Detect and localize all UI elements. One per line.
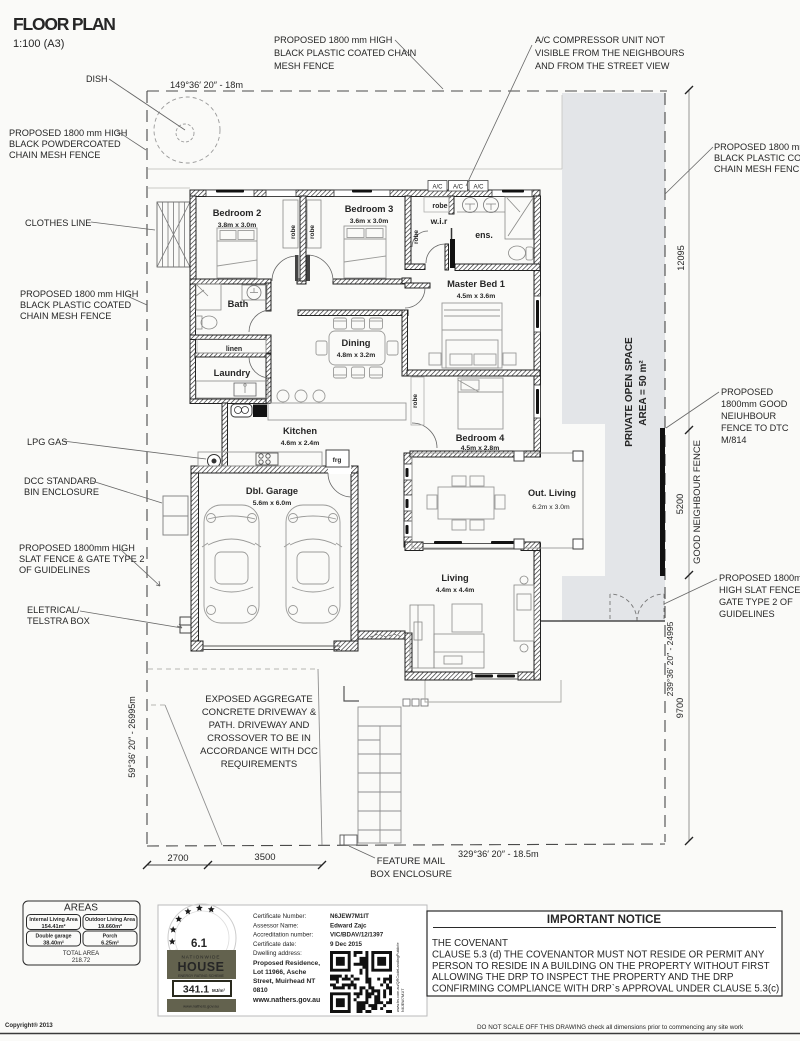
svg-text:HOUSE: HOUSE [178,960,225,974]
svg-text:5.6m x 6.0m: 5.6m x 6.0m [253,500,292,507]
svg-text:TELSTRA BOX: TELSTRA BOX [27,616,90,626]
svg-text:38.40m²: 38.40m² [43,940,64,947]
svg-text:CHAIN MESH FENCE: CHAIN MESH FENCE [9,150,100,160]
svg-text:BLACK POWDERCOATED: BLACK POWDERCOATED [9,139,121,149]
svg-text:Dbl. Garage: Dbl. Garage [246,486,298,496]
svg-text:Certificate date:: Certificate date: [253,941,297,948]
svg-text:N6JEW7M1IT: N6JEW7M1IT [401,988,405,1012]
svg-text:REQUIREMENTS: REQUIREMENTS [221,759,298,770]
svg-text:BOX ENCLOSURE: BOX ENCLOSURE [370,869,452,880]
svg-text:robe: robe [413,230,420,244]
svg-text:www.nathers.gov.au: www.nathers.gov.au [252,997,320,1004]
svg-text:239°36′ 20″ - 24995: 239°36′ 20″ - 24995 [665,621,675,696]
svg-text:19.660m²: 19.660m² [98,923,122,930]
svg-text:PROPOSED 1800 mm HIGH: PROPOSED 1800 mm HIGH [9,128,127,138]
svg-text:3.6m x 3.0m: 3.6m x 3.0m [350,218,389,225]
svg-text:ens.: ens. [475,230,493,240]
svg-text:FLOOR PLAN: FLOOR PLAN [13,14,115,34]
svg-text:OF GUIDELINES: OF GUIDELINES [19,565,90,575]
svg-text:NATIONWIDE: NATIONWIDE [181,955,220,960]
svg-text:CROSSOVER TO BE IN: CROSSOVER TO BE IN [207,733,311,744]
svg-text:9700: 9700 [675,698,685,718]
svg-text:FENCE TO DTC: FENCE TO DTC [721,423,789,433]
svg-text:DISH: DISH [86,74,108,84]
svg-text:BLACK PLASTIC COATED CHAIN: BLACK PLASTIC COATED CHAIN [274,48,416,58]
svg-text:PERSON TO RESIDE IN A BUILDING: PERSON TO RESIDE IN A BUILDING ON THE PR… [432,961,770,972]
svg-text:PATH. DRIVEWAY AND: PATH. DRIVEWAY AND [209,720,310,731]
svg-text:robe: robe [309,225,316,239]
svg-text:59°36′ 20″ - 26995m: 59°36′ 20″ - 26995m [127,696,137,778]
svg-text:NEIUHBOUR: NEIUHBOUR [721,411,776,421]
svg-text:Dining: Dining [342,338,371,348]
svg-text:218.72: 218.72 [72,958,91,964]
svg-text:frg: frg [333,457,342,464]
svg-text:CHAIN MESH FENCE: CHAIN MESH FENCE [714,164,800,174]
svg-text:329°36′ 20″ - 18.5m: 329°36′ 20″ - 18.5m [458,849,539,859]
svg-text:SLAT FENCE & GATE TYPE 2: SLAT FENCE & GATE TYPE 2 [19,554,144,564]
svg-text:MESH FENCE: MESH FENCE [274,61,334,71]
svg-text:BLACK PLASTIC COATED: BLACK PLASTIC COATED [20,300,131,310]
svg-text:www.hs.com.au/QRCodeLandingPub: www.hs.com.au/QRCodeLandingPublicfe [396,943,400,1012]
svg-text:Bedroom 4: Bedroom 4 [456,433,505,443]
svg-text:4.4m x 4.4m: 4.4m x 4.4m [436,587,475,594]
svg-text:w.i.r: w.i.r [430,216,448,226]
svg-text:6.25m²: 6.25m² [101,940,119,947]
svg-text:A/C: A/C [473,185,484,191]
svg-text:CONCRETE DRIVEWAY &: CONCRETE DRIVEWAY & [202,707,317,718]
svg-text:Double garage: Double garage [35,934,71,940]
svg-text:PROPOSED 1800 mm HIGH: PROPOSED 1800 mm HIGH [274,35,392,45]
svg-text:Copyright® 2013: Copyright® 2013 [5,1022,53,1029]
svg-text:3500: 3500 [254,852,275,863]
svg-text:GATE TYPE 2 OF: GATE TYPE 2 OF [719,597,793,607]
svg-text:A/C: A/C [453,185,464,191]
svg-text:5200: 5200 [675,494,685,514]
svg-text:BLACK PLASTIC COATED: BLACK PLASTIC COATED [714,153,800,163]
svg-text:GOOD NEIGHBOUR FENCE: GOOD NEIGHBOUR FENCE [692,440,703,564]
svg-text:12095: 12095 [676,245,686,271]
svg-text:6.1: 6.1 [191,938,208,950]
svg-text:Bedroom 3: Bedroom 3 [345,204,394,214]
svg-text:4.5m x 3.6m: 4.5m x 3.6m [457,293,496,300]
svg-text:6.2m x 3.0m: 6.2m x 3.0m [532,504,570,511]
svg-text:DCC STANDARD: DCC STANDARD [24,476,97,486]
svg-text:Living: Living [441,573,469,583]
svg-text:A/C COMPRESSOR UNIT NOT: A/C COMPRESSOR UNIT NOT [535,35,665,45]
svg-text:VIC/BDAV/12/1397: VIC/BDAV/12/1397 [330,932,384,939]
svg-text:LPG GAS: LPG GAS [27,437,67,447]
svg-text:HIGH SLAT FENCE &: HIGH SLAT FENCE & [719,585,800,595]
svg-text:ACCORDANCE WITH DCC: ACCORDANCE WITH DCC [200,746,318,757]
svg-text:Assessor Name:: Assessor Name: [253,922,299,929]
svg-text:2700: 2700 [167,853,188,864]
svg-text:341.1: 341.1 [183,984,209,996]
svg-text:AREA = 50 m²: AREA = 50 m² [638,360,649,426]
svg-text:DO NOT SCALE OFF THIS DRAWING: DO NOT SCALE OFF THIS DRAWING check all … [477,1024,744,1031]
svg-text:ENERGY RATING SCHEME: ENERGY RATING SCHEME [178,974,224,978]
svg-text:robe: robe [290,225,297,239]
svg-text:VISIBLE FROM THE NEIGHBOURS: VISIBLE FROM THE NEIGHBOURS [535,48,684,58]
svg-text:AND FROM THE STREET VIEW: AND FROM THE STREET VIEW [535,61,670,71]
svg-text:Internal Living Area: Internal Living Area [29,917,77,923]
svg-text:Edward Zajc: Edward Zajc [330,922,367,929]
svg-text:www.nathers.gov.au: www.nathers.gov.au [183,1004,219,1009]
svg-text:PROPOSED 1800 mm HIGH: PROPOSED 1800 mm HIGH [20,289,138,299]
svg-text:N6JEW7M1IT: N6JEW7M1IT [330,913,369,920]
svg-text:PRIVATE OPEN SPACE: PRIVATE OPEN SPACE [624,337,635,447]
svg-text:CONFIRMING COMPLIANCE WITH DRP: CONFIRMING COMPLIANCE WITH DRP`s APPROVA… [432,984,779,995]
svg-text:Out. Living: Out. Living [528,488,576,498]
svg-text:1:100 (A3): 1:100 (A3) [13,38,64,50]
svg-text:GUIDELINES: GUIDELINES [719,609,775,619]
svg-text:Accreditation number:: Accreditation number: [253,932,313,939]
svg-text:TOTAL AREA: TOTAL AREA [63,951,99,957]
svg-text:Street, Muirhead NT: Street, Muirhead NT [253,978,315,985]
svg-text:ALLOWING THE DRP TO INSPECT TH: ALLOWING THE DRP TO INSPECT THE PROPERTY… [432,972,733,983]
svg-text:Proposed Residence,: Proposed Residence, [253,960,320,967]
svg-text:9 Dec 2015: 9 Dec 2015 [330,941,363,948]
svg-text:AREAS: AREAS [64,903,98,914]
svg-text:Porch: Porch [103,934,118,940]
svg-text:0810: 0810 [253,987,268,994]
svg-text:robe: robe [432,203,447,210]
svg-text:IMPORTANT NOTICE: IMPORTANT NOTICE [547,914,661,926]
svg-text:1800mm GOOD: 1800mm GOOD [721,399,788,409]
svg-text:robe: robe [412,394,419,408]
svg-text:149°36′ 20″ - 18m: 149°36′ 20″ - 18m [170,80,243,90]
svg-text:FEATURE MAIL: FEATURE MAIL [377,856,445,867]
svg-text:Kitchen: Kitchen [283,426,317,436]
svg-text:Outdoor Living Area: Outdoor Living Area [85,917,135,923]
svg-text:CHAIN MESH FENCE: CHAIN MESH FENCE [20,311,111,321]
svg-text:Master Bed 1: Master Bed 1 [447,279,505,289]
svg-text:PROPOSED 1800 mm HIGH: PROPOSED 1800 mm HIGH [714,142,800,152]
svg-text:A/C: A/C [432,185,443,191]
svg-text:CLOTHES LINE: CLOTHES LINE [25,218,91,228]
svg-text:Laundry: Laundry [214,368,252,378]
svg-text:Bath: Bath [228,299,249,309]
svg-text:Dwelling address:: Dwelling address: [253,950,302,957]
svg-text:ELETRICAL/: ELETRICAL/ [27,605,80,615]
svg-text:4.5m x 2.8m: 4.5m x 2.8m [461,445,500,452]
svg-text:PROPOSED 1800mm HIGH: PROPOSED 1800mm HIGH [19,543,135,553]
svg-text:PROPOSED 1800mm: PROPOSED 1800mm [719,573,800,583]
svg-text:154.41m²: 154.41m² [42,923,66,930]
svg-text:EXPOSED AGGREGATE: EXPOSED AGGREGATE [205,694,313,705]
svg-text:3.8m x 3.0m: 3.8m x 3.0m [218,222,257,229]
svg-text:Bedroom 2: Bedroom 2 [213,208,262,218]
svg-text:PROPOSED: PROPOSED [721,387,773,397]
svg-text:THE COVENANT: THE COVENANT [432,938,508,949]
svg-text:CLAUSE 5.3 (d) THE COVENANTOR: CLAUSE 5.3 (d) THE COVENANTOR MUST NOT R… [432,949,765,960]
svg-text:4.8m x 3.2m: 4.8m x 3.2m [337,352,376,359]
svg-text:Lot 11966, Asche: Lot 11966, Asche [253,969,307,976]
svg-text:M/814: M/814 [721,435,747,445]
svg-text:Certificate Number:: Certificate Number: [253,913,307,920]
svg-text:4.6m x 2.4m: 4.6m x 2.4m [281,440,320,447]
svg-text:MJ/m²: MJ/m² [212,988,226,993]
svg-text:linen: linen [226,346,242,353]
svg-text:BIN ENCLOSURE: BIN ENCLOSURE [24,487,99,497]
